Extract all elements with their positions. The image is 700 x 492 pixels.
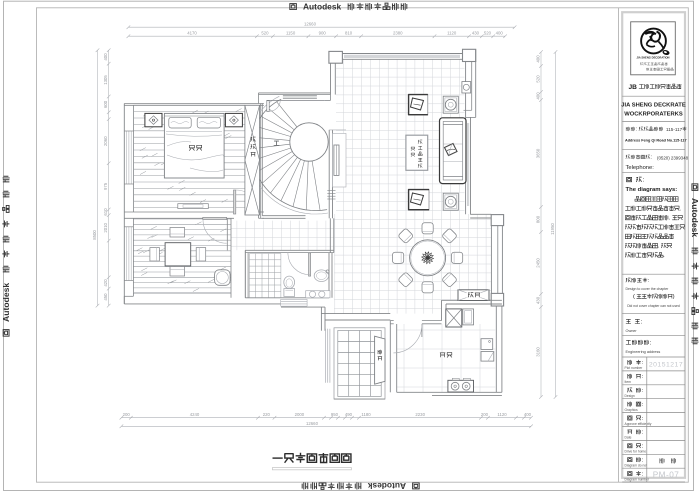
svg-text:2450: 2450 (536, 258, 541, 268)
svg-text:Autodesk: Autodesk (368, 481, 407, 491)
svg-text:Graphics: Graphics (625, 408, 639, 412)
svg-text:900: 900 (319, 31, 327, 36)
svg-text:12660: 12660 (304, 22, 317, 27)
svg-text:490: 490 (345, 412, 353, 417)
svg-text:610: 610 (103, 208, 108, 216)
svg-text:Owner: Owner (626, 329, 638, 333)
svg-text:3160: 3160 (536, 347, 541, 357)
svg-text:Item: Item (625, 380, 632, 384)
svg-text:450: 450 (103, 293, 108, 301)
svg-text:1120: 1120 (497, 412, 507, 417)
svg-text:200: 200 (123, 412, 131, 417)
svg-text:Engineering address: Engineering address (626, 350, 661, 354)
svg-text:2230: 2230 (415, 412, 425, 417)
svg-text:Approve efficiently: Approve efficiently (625, 422, 652, 426)
svg-text:Date: Date (625, 436, 632, 440)
svg-text::: : (651, 155, 652, 161)
svg-text:Autodesk: Autodesk (1, 283, 11, 322)
svg-text:400: 400 (536, 55, 541, 63)
svg-text:1305: 1305 (103, 75, 108, 85)
svg-text:8500: 8500 (92, 230, 97, 240)
svg-text:PM-07: PM-07 (653, 471, 680, 480)
svg-text::: : (642, 402, 644, 408)
svg-text:400: 400 (536, 92, 541, 100)
svg-text:Diagram do not: Diagram do not (625, 464, 648, 468)
svg-text:2060: 2060 (103, 136, 108, 146)
svg-text:Plot number: Plot number (625, 366, 644, 370)
svg-text:4170: 4170 (187, 31, 197, 36)
svg-text:JB: JB (629, 84, 638, 91)
svg-text:1150: 1150 (286, 31, 296, 36)
svg-text:): ) (673, 294, 675, 300)
svg-text:Address Feng Qi Road No.115-11: Address Feng Qi Road No.115-117 (625, 139, 687, 143)
svg-text:The diagram says:: The diagram says: (626, 187, 678, 193)
svg-text:1180: 1180 (361, 412, 371, 417)
svg-text:115-117: 115-117 (666, 127, 683, 132)
svg-text:520: 520 (484, 31, 492, 36)
svg-text:430: 430 (472, 31, 480, 36)
svg-text:WOCKRPORATERKS: WOCKRPORATERKS (624, 112, 683, 118)
svg-text:12660: 12660 (306, 421, 319, 426)
svg-text:Telephone:: Telephone: (626, 165, 655, 171)
svg-text:Did not cover chapter can not: Did not cover chapter can not used (627, 304, 680, 308)
svg-text:Autodesk: Autodesk (690, 198, 700, 237)
svg-text:810: 810 (345, 31, 353, 36)
svg-text:520: 520 (536, 75, 541, 83)
svg-text:.: . (663, 252, 665, 259)
svg-text:950: 950 (331, 412, 339, 417)
svg-text:.: . (658, 243, 660, 250)
svg-text:1120: 1120 (447, 31, 457, 36)
svg-text::: : (643, 177, 645, 184)
svg-text::: : (642, 430, 644, 436)
svg-text:400: 400 (103, 53, 108, 61)
svg-text:JIA SHENG DECORATION: JIA SHENG DECORATION (637, 55, 670, 59)
svg-text:Design to cover the chapter: Design to cover the chapter (626, 287, 670, 291)
svg-text:420: 420 (103, 279, 108, 287)
svg-text::: : (636, 127, 637, 133)
svg-text:400: 400 (496, 31, 504, 36)
svg-text::: : (641, 318, 643, 325)
svg-text:975: 975 (103, 182, 108, 190)
svg-text:430: 430 (536, 296, 541, 304)
svg-text:200: 200 (481, 412, 489, 417)
svg-text:2010: 2010 (103, 223, 108, 233)
svg-text:11950: 11950 (550, 223, 555, 235)
svg-text:520: 520 (261, 31, 269, 36)
svg-text:Diagram number: Diagram number (625, 477, 650, 481)
svg-text:(0520) 2399348: (0520) 2399348 (657, 156, 689, 161)
svg-text::: : (650, 339, 652, 346)
svg-text:Design: Design (625, 394, 635, 398)
svg-text:JIA SHENG DECKRATE: JIA SHENG DECKRATE (621, 103, 686, 109)
svg-text:Autodesk: Autodesk (303, 1, 342, 11)
svg-text:600: 600 (103, 100, 108, 108)
svg-text:Drive for home: Drive for home (625, 450, 647, 454)
svg-text:.: . (679, 205, 681, 212)
svg-text::: : (648, 278, 650, 284)
svg-text:.: . (668, 215, 670, 222)
svg-text:800: 800 (536, 215, 541, 223)
svg-text::: : (642, 374, 644, 380)
svg-text:2000: 2000 (295, 412, 305, 417)
svg-text::: : (642, 388, 644, 394)
svg-text:220: 220 (263, 412, 271, 417)
svg-text:400: 400 (524, 412, 532, 417)
svg-text:3650: 3650 (536, 148, 541, 158)
svg-text:20151217: 20151217 (649, 362, 683, 369)
svg-text:4240: 4240 (190, 412, 200, 417)
svg-text:2380: 2380 (393, 31, 403, 36)
svg-text:(: ( (633, 294, 635, 300)
